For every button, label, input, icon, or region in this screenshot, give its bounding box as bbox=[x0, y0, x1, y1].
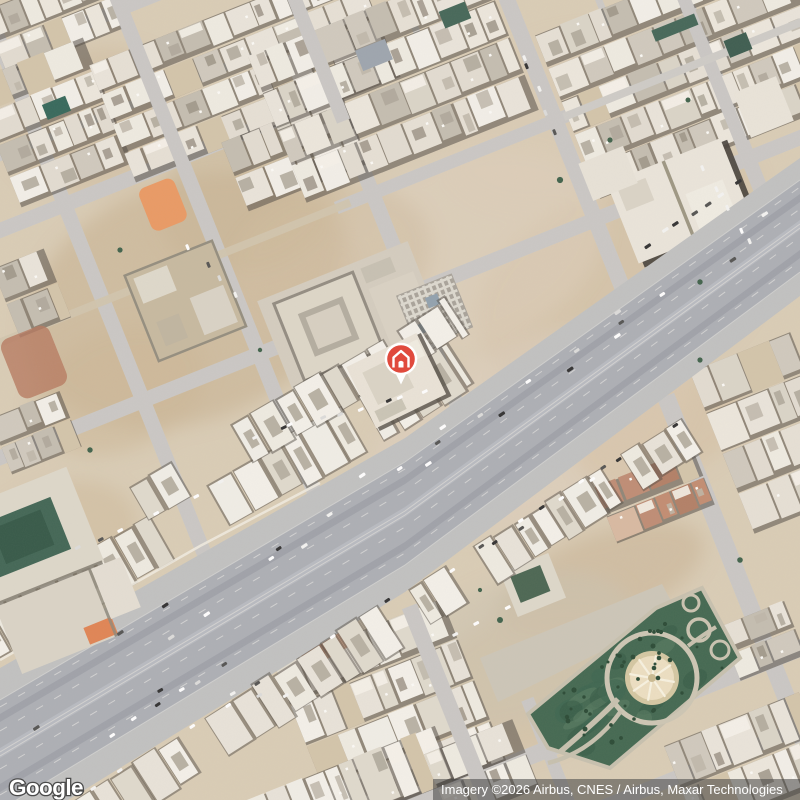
svg-text:Google: Google bbox=[9, 775, 83, 800]
svg-text:Imagery ©2026 Airbus, CNES / A: Imagery ©2026 Airbus, CNES / Airbus, Max… bbox=[441, 782, 783, 797]
